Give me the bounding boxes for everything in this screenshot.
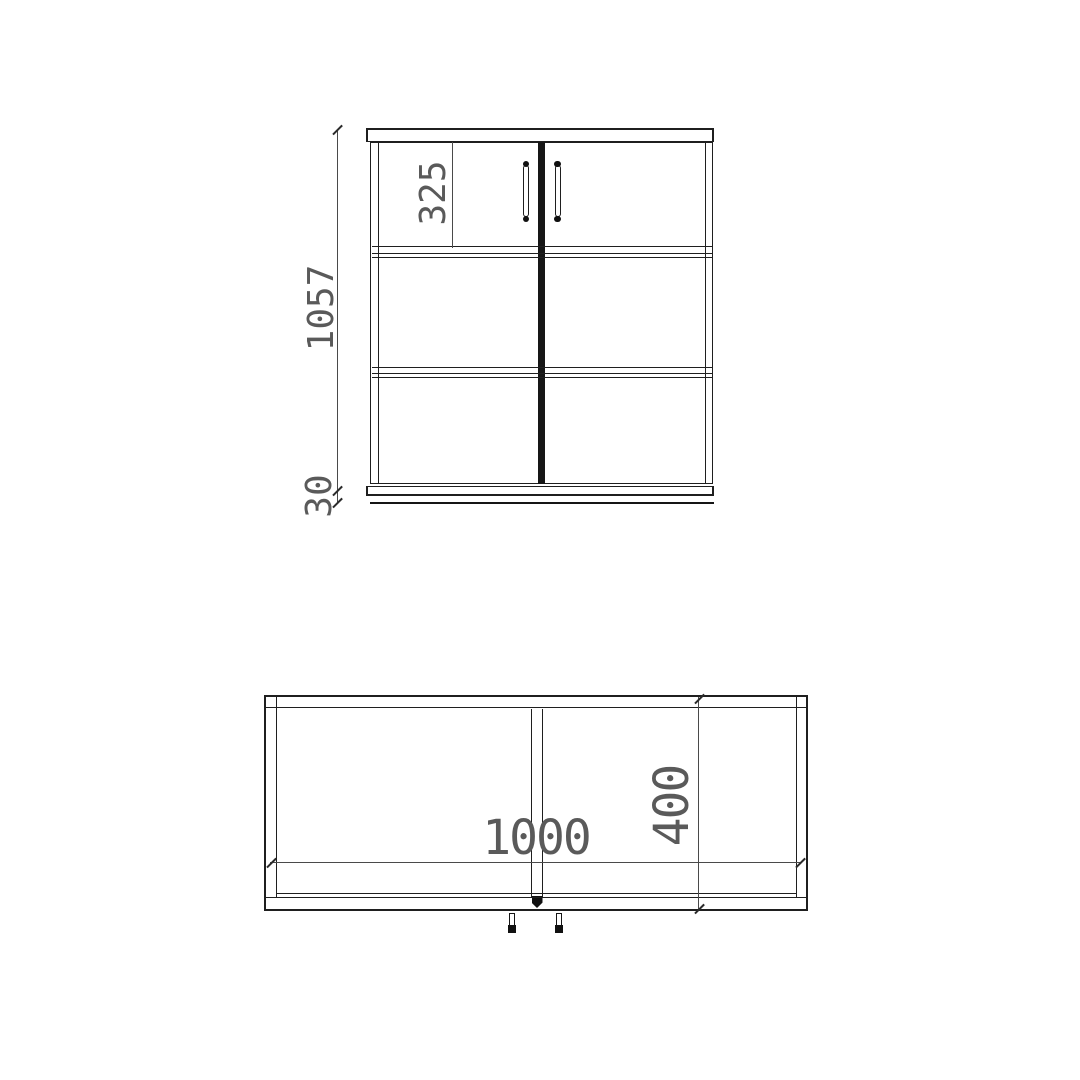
handle-knob bbox=[555, 925, 563, 933]
plan-right-door-handle bbox=[0, 0, 1080, 1080]
cabinet-technical-drawing: 325 1057 30 1000 400 bbox=[0, 0, 1080, 1080]
top-plan-view: 1000 400 bbox=[0, 0, 1080, 1080]
